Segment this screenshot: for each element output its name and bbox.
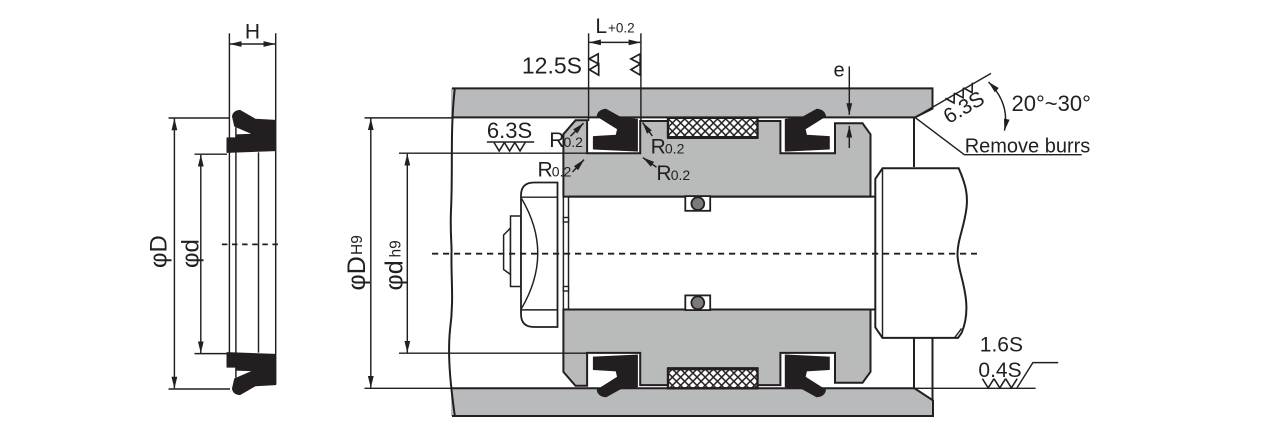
svg-text:0.2: 0.2 (552, 164, 572, 180)
svg-text:H: H (245, 21, 260, 44)
svg-text:12.5S: 12.5S (522, 52, 582, 78)
svg-text:0.2: 0.2 (671, 167, 691, 183)
svg-text:Remove burrs: Remove burrs (965, 135, 1091, 157)
svg-text:0.2: 0.2 (564, 134, 584, 150)
svg-text:φD: φD (146, 235, 173, 268)
svg-text:φd: φd (380, 260, 408, 290)
svg-text:1.6S: 1.6S (980, 334, 1023, 357)
svg-text:20°~30°: 20°~30° (1012, 91, 1091, 116)
svg-text:R: R (651, 136, 666, 159)
svg-text:R: R (549, 129, 564, 152)
svg-text:6.3S: 6.3S (487, 118, 532, 143)
svg-text:R: R (656, 162, 671, 185)
svg-text:φd: φd (177, 239, 204, 268)
svg-text:R: R (538, 159, 553, 182)
svg-text:0.2: 0.2 (665, 141, 685, 157)
svg-text:L: L (595, 15, 607, 38)
svg-text:φD: φD (343, 256, 371, 290)
svg-text:6.3S: 6.3S (940, 87, 989, 129)
svg-text:h9: h9 (388, 240, 405, 257)
svg-text:e: e (834, 60, 845, 82)
svg-text:0.4S: 0.4S (978, 359, 1021, 382)
svg-text:+0.2: +0.2 (608, 21, 635, 36)
svg-text:H9: H9 (349, 235, 366, 255)
